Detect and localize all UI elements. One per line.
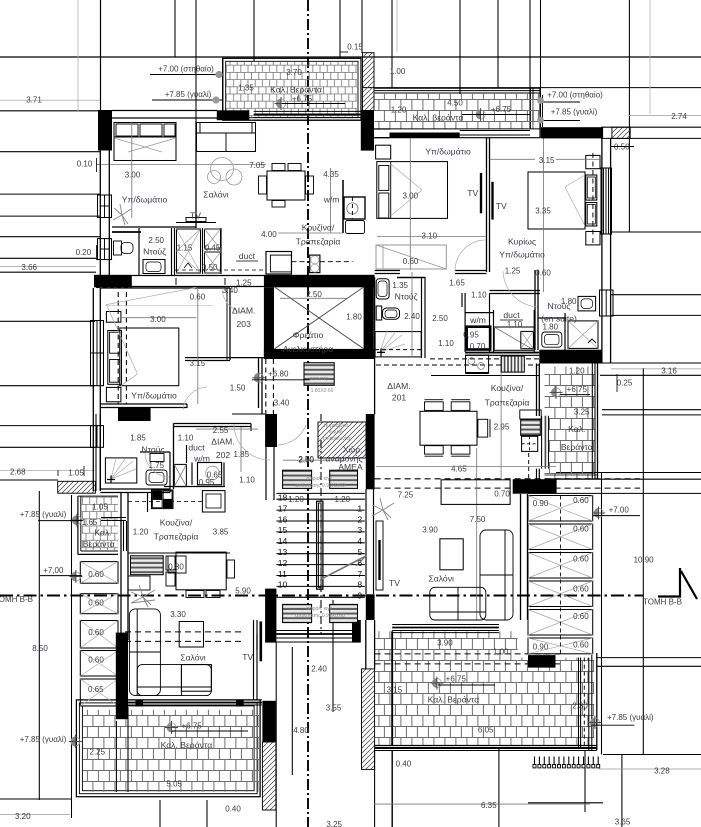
svg-text:14: 14 — [278, 536, 288, 546]
svg-text:0.90: 0.90 — [533, 643, 549, 652]
svg-text:+6.75: +6.75 — [491, 105, 512, 114]
svg-text:Σαλόνι: Σαλόνι — [428, 574, 454, 584]
svg-text:ασφαλ. κιγκ.: ασφαλ. κιγκ. — [306, 476, 333, 482]
svg-text:Υπ/δωμάτιο: Υπ/δωμάτιο — [499, 250, 545, 260]
svg-text:1.10: 1.10 — [507, 320, 523, 329]
svg-text:4.50: 4.50 — [447, 99, 463, 108]
svg-text:+7.85 (γυαλί): +7.85 (γυαλί) — [20, 735, 67, 744]
svg-text:1.10: 1.10 — [438, 339, 454, 348]
svg-text:0.60: 0.60 — [88, 656, 104, 665]
svg-text:Καλ. βεράντα: Καλ. βεράντα — [413, 113, 464, 123]
svg-text:TV: TV — [496, 201, 507, 211]
svg-text:2.40: 2.40 — [311, 665, 327, 674]
svg-text:0.70: 0.70 — [470, 342, 486, 351]
svg-text:Τραπεζαρία: Τραπεζαρία — [485, 398, 530, 408]
svg-text:ΔΙΑΜ.: ΔΙΑΜ. — [232, 306, 255, 316]
svg-text:3.10: 3.10 — [422, 232, 438, 241]
svg-text:202: 202 — [216, 450, 231, 460]
svg-text:3.16: 3.16 — [661, 367, 677, 376]
svg-text:+7.85 (γυαλί): +7.85 (γυαλί) — [20, 510, 67, 519]
svg-text:0.95: 0.95 — [199, 478, 215, 487]
svg-text:+6.80: +6.80 — [268, 370, 289, 379]
svg-text:ΑΜΕΑ: ΑΜΕΑ — [338, 462, 363, 472]
svg-text:8.50: 8.50 — [32, 644, 48, 653]
svg-text:+7.00 (στηθαίο): +7.00 (στηθαίο) — [158, 65, 214, 74]
svg-text:+7.85 (γυαλί): +7.85 (γυαλί) — [165, 90, 212, 99]
svg-text:3.71: 3.71 — [26, 96, 42, 105]
svg-text:2.55: 2.55 — [213, 426, 229, 435]
svg-text:16: 16 — [278, 514, 288, 524]
svg-text:duct: duct — [239, 251, 256, 261]
svg-text:3.35: 3.35 — [535, 207, 551, 216]
svg-text:0.25: 0.25 — [617, 378, 633, 387]
svg-text:0.90: 0.90 — [533, 499, 549, 508]
svg-text:+6.75: +6.75 — [181, 721, 202, 730]
svg-text:1.20: 1.20 — [133, 528, 149, 537]
svg-text:0.60: 0.60 — [573, 525, 589, 534]
svg-text:TV: TV — [467, 188, 478, 198]
svg-text:3.65: 3.65 — [615, 817, 631, 826]
svg-text:1.20: 1.20 — [335, 495, 351, 504]
svg-text:11: 11 — [278, 569, 287, 579]
svg-text:3: 3 — [357, 525, 362, 535]
svg-text:ΤΟΜΗ Β-Β: ΤΟΜΗ Β-Β — [0, 595, 33, 604]
svg-text:3.00: 3.00 — [150, 315, 166, 324]
svg-text:1.00: 1.00 — [390, 67, 406, 76]
svg-text:1.00: 1.00 — [493, 648, 509, 657]
svg-text:0.60: 0.60 — [190, 292, 206, 301]
svg-text:0.45: 0.45 — [205, 244, 221, 253]
svg-text:3.20: 3.20 — [15, 812, 31, 821]
svg-text:4: 4 — [357, 536, 362, 546]
svg-text:1.10: 1.10 — [239, 476, 255, 485]
svg-text:πυροσβ/κή: πυροσβ/κή — [324, 422, 349, 429]
svg-text:3.40: 3.40 — [274, 398, 290, 407]
svg-text:10: 10 — [278, 580, 288, 590]
svg-text:203: 203 — [237, 319, 252, 329]
svg-text:7: 7 — [357, 569, 362, 579]
svg-text:+7.85 (γυαλί): +7.85 (γυαλί) — [607, 713, 654, 722]
svg-text:1.65: 1.65 — [449, 279, 465, 288]
svg-text:12: 12 — [278, 558, 288, 568]
svg-text:0.60: 0.60 — [88, 599, 104, 608]
svg-text:ΔΙΑΜ.: ΔΙΑΜ. — [387, 381, 410, 391]
svg-text:Σαλόνι: Σαλόνι — [180, 652, 206, 662]
svg-text:1.80X0.60: 1.80X0.60 — [311, 388, 334, 394]
svg-text:duct: duct — [503, 310, 520, 320]
svg-text:Καλ. Βεράντα: Καλ. Βεράντα — [428, 694, 480, 704]
svg-text:1.80: 1.80 — [561, 297, 577, 306]
svg-text:0.40: 0.40 — [396, 759, 412, 768]
svg-text:0.60: 0.60 — [573, 641, 589, 650]
svg-text:18: 18 — [278, 493, 288, 503]
svg-text:0.60: 0.60 — [535, 268, 551, 277]
svg-text:Ντούς: Ντούς — [141, 444, 164, 454]
svg-text:0.60: 0.60 — [573, 612, 589, 621]
svg-text:1.85: 1.85 — [130, 434, 146, 443]
svg-text:3.00: 3.00 — [125, 171, 141, 180]
svg-text:1: 1 — [357, 503, 362, 513]
svg-text:0.60: 0.60 — [88, 628, 104, 637]
svg-text:Τραπεζαρία: Τραπεζαρία — [154, 532, 199, 542]
svg-text:απόστασης 0.90X0.60: απόστασης 0.90X0.60 — [295, 482, 345, 489]
svg-text:7.25: 7.25 — [398, 491, 414, 500]
svg-text:απόστασης 0.90X0.60: απόστασης 0.90X0.60 — [295, 612, 345, 619]
svg-text:3.00: 3.00 — [403, 191, 419, 200]
svg-text:Βεράντα: Βεράντα — [561, 442, 593, 452]
svg-text:Καλ. Βεράντα: Καλ. Βεράντα — [161, 740, 213, 750]
svg-text:1.25: 1.25 — [505, 267, 521, 276]
svg-text:1.50: 1.50 — [230, 384, 246, 393]
svg-text:1.65: 1.65 — [82, 518, 98, 527]
svg-text:+7.85 (γυαλί): +7.85 (γυαλί) — [551, 108, 598, 117]
svg-text:TV: TV — [190, 211, 201, 221]
svg-text:6.35: 6.35 — [481, 801, 497, 810]
svg-text:2.40: 2.40 — [404, 312, 420, 321]
svg-text:0.15: 0.15 — [347, 43, 363, 52]
svg-text:2.50: 2.50 — [148, 236, 164, 245]
svg-text:3.28: 3.28 — [654, 767, 670, 776]
svg-text:10.90: 10.90 — [634, 555, 655, 564]
svg-text:0.40: 0.40 — [225, 805, 241, 814]
svg-text:1.35: 1.35 — [392, 281, 408, 290]
svg-text:0.60: 0.60 — [573, 555, 589, 564]
svg-text:3.15: 3.15 — [387, 685, 403, 694]
svg-text:3.90: 3.90 — [437, 638, 453, 647]
svg-text:+7.00: +7.00 — [609, 506, 630, 515]
svg-text:1.35: 1.35 — [238, 84, 254, 93]
svg-text:0.65: 0.65 — [88, 685, 104, 694]
svg-text:φωλιά: φωλιά — [329, 429, 343, 436]
svg-text:w/m: w/m — [469, 315, 486, 325]
svg-text:1.80: 1.80 — [543, 323, 559, 332]
svg-text:Βεράντα: Βεράντα — [83, 539, 115, 549]
svg-text:+7.00 (στηθαίο): +7.00 (στηθαίο) — [547, 91, 603, 100]
svg-text:6: 6 — [357, 558, 362, 568]
svg-text:2.50: 2.50 — [432, 314, 448, 323]
svg-text:Κουζίνα/: Κουζίνα/ — [160, 518, 193, 528]
svg-text:0.80: 0.80 — [168, 563, 184, 572]
svg-text:1.10: 1.10 — [178, 434, 194, 443]
svg-text:2.68: 2.68 — [10, 467, 26, 476]
svg-text:5.90: 5.90 — [235, 587, 251, 596]
svg-text:w/m: w/m — [193, 454, 210, 464]
svg-text:ΤΟΜΗ Β-Β: ΤΟΜΗ Β-Β — [643, 598, 682, 607]
svg-text:Καλ.: Καλ. — [568, 424, 585, 434]
svg-text:3.25: 3.25 — [326, 820, 342, 827]
svg-text:4.80: 4.80 — [293, 726, 309, 735]
svg-text:0.95: 0.95 — [463, 330, 479, 339]
svg-text:17: 17 — [278, 503, 288, 513]
svg-text:201: 201 — [392, 393, 407, 403]
svg-text:1.25: 1.25 — [236, 279, 252, 288]
svg-text:ασανσέρ: ασανσέρ — [309, 375, 329, 382]
svg-text:7.05: 7.05 — [249, 161, 265, 170]
svg-text:0.20: 0.20 — [76, 248, 92, 257]
svg-text:επικοινωνίας: επικοινωνίας — [323, 436, 352, 442]
svg-text:2.50: 2.50 — [306, 290, 322, 299]
svg-text:1.85: 1.85 — [234, 450, 250, 459]
svg-text:0.60: 0.60 — [573, 585, 589, 594]
svg-text:6.05: 6.05 — [478, 726, 494, 735]
svg-text:Υπ/δωμάτιο: Υπ/δωμάτιο — [425, 147, 471, 157]
svg-text:2.95: 2.95 — [494, 423, 510, 432]
svg-text:1.15: 1.15 — [177, 244, 193, 253]
svg-text:duct: duct — [188, 443, 205, 453]
svg-text:Καλ.: Καλ. — [94, 527, 111, 537]
svg-text:1.20: 1.20 — [288, 495, 304, 504]
svg-text:2.30: 2.30 — [572, 701, 588, 710]
svg-text:0.50: 0.50 — [202, 263, 218, 272]
svg-text:0.70: 0.70 — [494, 489, 510, 498]
svg-text:2.25: 2.25 — [90, 748, 106, 757]
svg-text:Κουζίνα/: Κουζίνα/ — [302, 223, 335, 233]
svg-text:0.60: 0.60 — [573, 496, 589, 505]
svg-text:4.65: 4.65 — [451, 465, 467, 474]
svg-text:3.70: 3.70 — [286, 68, 302, 77]
svg-text:8: 8 — [357, 580, 362, 590]
svg-text:13: 13 — [278, 547, 288, 557]
svg-text:TV: TV — [389, 578, 400, 588]
svg-text:Καλ. Βεράντα: Καλ. Βεράντα — [270, 85, 322, 95]
svg-text:ασφαλ. κιγκ.: ασφαλ. κιγκ. — [306, 606, 333, 612]
svg-text:4.35: 4.35 — [323, 170, 339, 179]
svg-text:Ανελκυστήρα: Ανελκυστήρα — [283, 344, 333, 354]
svg-text:1.20: 1.20 — [391, 106, 407, 115]
svg-text:3.85: 3.85 — [213, 528, 229, 537]
svg-text:7.50: 7.50 — [470, 515, 486, 524]
svg-text:15: 15 — [278, 525, 288, 535]
svg-text:3.66: 3.66 — [21, 263, 37, 272]
svg-text:9: 9 — [357, 591, 362, 601]
svg-text:ΔΙΑΜ.: ΔΙΑΜ. — [211, 437, 234, 447]
svg-text:3.90: 3.90 — [422, 526, 438, 535]
svg-text:0.60: 0.60 — [403, 257, 419, 266]
svg-text:3.15: 3.15 — [190, 359, 206, 368]
svg-text:4.00: 4.00 — [261, 230, 277, 239]
svg-text:2.74: 2.74 — [671, 112, 687, 121]
svg-text:5.05: 5.05 — [166, 779, 182, 788]
svg-text:1.10: 1.10 — [471, 291, 487, 300]
svg-text:Υπ/δωμάτιο: Υπ/δωμάτιο — [122, 194, 168, 204]
svg-text:+6.75: +6.75 — [446, 675, 467, 684]
svg-text:Κυρίως: Κυρίως — [508, 236, 536, 246]
svg-text:3.30: 3.30 — [170, 610, 186, 619]
svg-text:1.05: 1.05 — [92, 503, 108, 512]
svg-text:1.05: 1.05 — [68, 468, 84, 477]
svg-text:1.75: 1.75 — [149, 461, 165, 470]
svg-text:TV: TV — [242, 652, 253, 662]
svg-text:3.15: 3.15 — [539, 156, 555, 165]
svg-text:0.10: 0.10 — [77, 160, 93, 169]
svg-text:Τραπεζαρία: Τραπεζαρία — [296, 237, 341, 247]
svg-text:2: 2 — [357, 514, 362, 524]
svg-text:+6.75: +6.75 — [567, 385, 588, 394]
svg-text:2.50: 2.50 — [299, 455, 315, 464]
svg-text:0.60: 0.60 — [88, 570, 104, 579]
svg-text:+7,00: +7,00 — [43, 566, 64, 575]
svg-text:Ντούζ: Ντούζ — [395, 292, 418, 302]
svg-text:Φρεάτιο: Φρεάτιο — [293, 330, 324, 340]
svg-text:1.80: 1.80 — [346, 313, 362, 322]
svg-text:Υπ/δωμάτιο: Υπ/δωμάτιο — [131, 391, 177, 401]
svg-text:3.55: 3.55 — [326, 703, 342, 712]
svg-text:1.20: 1.20 — [569, 367, 585, 376]
svg-text:Ντούζ: Ντούζ — [143, 247, 166, 257]
svg-text:w/m: w/m — [323, 194, 340, 204]
svg-text:3.25: 3.25 — [574, 408, 590, 417]
svg-text:5: 5 — [357, 547, 362, 557]
svg-text:Κουζίνα/: Κουζίνα/ — [491, 383, 524, 393]
svg-text:Σαλόνι: Σαλόνι — [203, 190, 229, 200]
svg-text:+6.75: +6.75 — [292, 95, 313, 104]
